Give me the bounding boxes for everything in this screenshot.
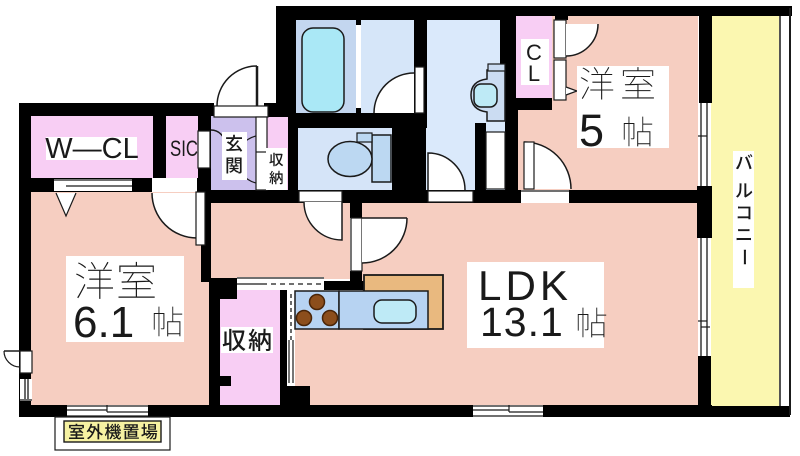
svg-text:SIC: SIC <box>170 136 198 161</box>
svg-text:L: L <box>528 61 540 86</box>
svg-text:W—CL: W—CL <box>45 133 138 165</box>
svg-text:6.1: 6.1 <box>73 298 134 347</box>
svg-text:5: 5 <box>579 105 604 156</box>
svg-text:13.1: 13.1 <box>480 299 564 345</box>
